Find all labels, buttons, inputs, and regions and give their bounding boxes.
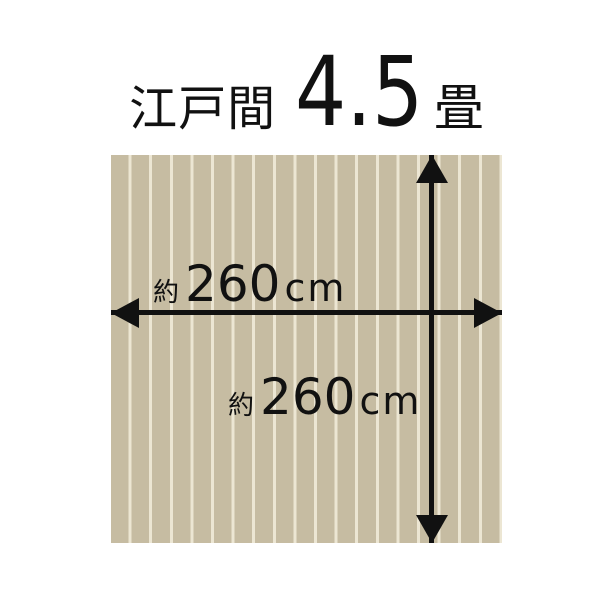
width-value: 260 — [185, 259, 280, 309]
size-value: 4.5 — [295, 44, 423, 140]
arrow-up-head-icon — [416, 155, 448, 183]
height-approx-prefix: 約 — [228, 393, 254, 419]
product-dimension-diagram: 江戸間 4.5 畳 約 260 cm 約 260 cm — [0, 0, 600, 600]
height-unit: cm — [359, 382, 421, 420]
size-unit-label: 畳 — [434, 83, 484, 133]
arrow-right-head-icon — [474, 298, 502, 328]
width-dimension-label: 約 260 cm — [153, 259, 346, 309]
room-type-label: 江戸間 — [129, 85, 276, 133]
arrow-left-head-icon — [111, 298, 139, 328]
height-value: 260 — [260, 372, 355, 422]
page-title: 江戸間 4.5 畳 — [0, 44, 600, 140]
width-arrow — [111, 155, 502, 543]
flooring-mat-swatch: 約 260 cm 約 260 cm — [111, 155, 502, 543]
width-approx-prefix: 約 — [153, 280, 179, 306]
height-arrow — [111, 155, 502, 543]
height-dimension-label: 約 260 cm — [228, 372, 421, 422]
width-unit: cm — [284, 269, 346, 307]
arrow-down-head-icon — [416, 515, 448, 543]
width-arrow-shaft — [111, 310, 502, 315]
height-arrow-shaft — [429, 155, 434, 543]
